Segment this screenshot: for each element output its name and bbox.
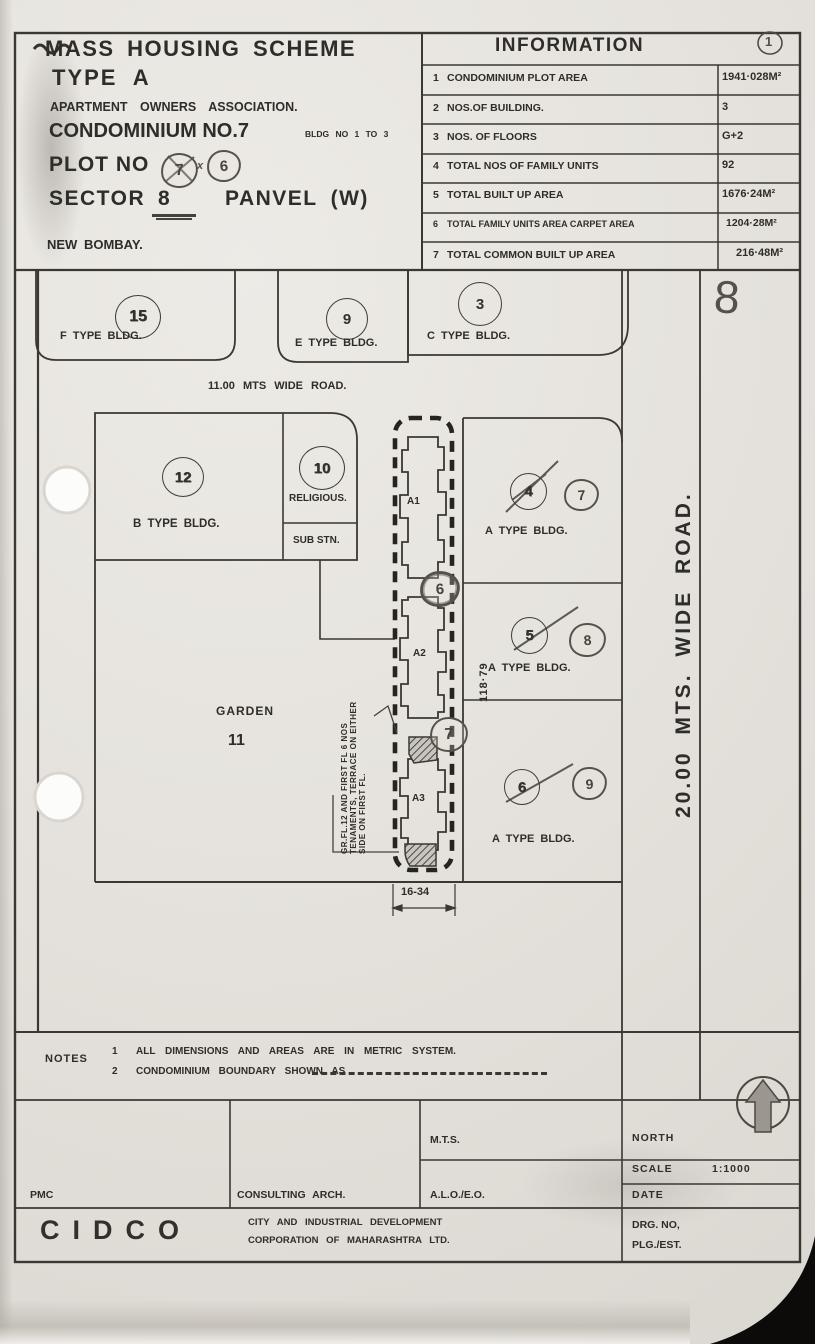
- paper-bottom-edge: [0, 1300, 690, 1344]
- sector-prefix: SECTOR: [49, 187, 145, 210]
- plot-no-cross-mark: x: [197, 160, 203, 172]
- note-text: ALL DIMENSIONS AND AREAS ARE IN METRIC S…: [136, 1046, 456, 1057]
- corporation-name-line1: CITY AND INDUSTRIAL DEVELOPMENT: [248, 1218, 442, 1228]
- consulting-arch-cell: CONSULTING ARCH.: [237, 1190, 345, 1202]
- drawing-sheet: MASS HOUSING SCHEME TYPE A APARTMENT OWN…: [0, 0, 815, 1344]
- sheet-number: 1: [765, 35, 772, 49]
- hand-sector-number: 8: [713, 271, 741, 323]
- plot-b-number-circled: 12: [162, 457, 204, 497]
- info-row-label: NOS.OF BUILDING.: [447, 103, 544, 115]
- garden-number: 11: [228, 732, 245, 750]
- sector-number: 8: [158, 187, 170, 210]
- corporation-name-line2: CORPORATION OF MAHARASHTRA LTD.: [248, 1236, 450, 1246]
- a-plot1-old-number: 4: [510, 473, 547, 510]
- plot-c-label: C TYPE BLDG.: [427, 330, 510, 342]
- note-number: 1: [112, 1046, 118, 1057]
- drg-no-line1: DRG. NO,: [632, 1220, 680, 1232]
- plot-e-label: E TYPE BLDG.: [295, 337, 377, 349]
- plot-no-prefix: PLOT NO: [49, 153, 149, 176]
- info-row-value: 216·48M²: [736, 247, 783, 259]
- info-row-label: NOS. OF FLOORS: [447, 132, 537, 144]
- boundary-dash-sample: [312, 1072, 547, 1075]
- drg-no-line2: PLG./EST.: [632, 1240, 682, 1252]
- info-row-label: TOTAL BUILT UP AREA: [447, 190, 563, 202]
- road-top-label: 11.00 MTS WIDE ROAD.: [208, 380, 346, 392]
- plot-c-outline: [408, 271, 628, 355]
- info-row-value: 92: [722, 159, 734, 171]
- plot-f-label: F TYPE BLDG.: [60, 330, 142, 342]
- info-row-no: 7: [433, 250, 439, 262]
- notes-label: NOTES: [45, 1053, 88, 1065]
- info-row-value: 1941·028M²: [722, 71, 781, 83]
- tower-a1-outline: [400, 437, 446, 578]
- amenity-number-circled: 10: [299, 446, 345, 490]
- annotation-line: SIDE ON FIRST FL.: [359, 659, 368, 854]
- condominium-line: CONDOMINIUM NO.7: [49, 120, 249, 142]
- hatched-patch-lower: [405, 844, 436, 866]
- info-title: INFORMATION: [495, 36, 644, 57]
- info-row-no: 5: [433, 190, 439, 202]
- sector-location: PANVEL (W): [225, 187, 369, 210]
- pmc-cell: PMC: [30, 1190, 53, 1202]
- a-plot1-label: A TYPE BLDG.: [485, 525, 568, 537]
- city-line: NEW BOMBAY.: [47, 238, 143, 252]
- scale-value: 1:1000: [712, 1164, 751, 1176]
- info-row-no: 1: [433, 73, 439, 85]
- a-plot2-label: A TYPE BLDG.: [488, 662, 571, 674]
- info-row-value: 1204·28M²: [726, 218, 777, 230]
- info-row-label: CONDOMINIUM PLOT AREA: [447, 73, 588, 85]
- note-number: 2: [112, 1066, 118, 1077]
- info-row-no: 4: [433, 161, 439, 173]
- scheme-type: TYPE A: [52, 66, 151, 90]
- sector-underline: [152, 214, 196, 217]
- a-plot3-old-number: 6: [504, 769, 540, 805]
- tower-a3-label: A3: [412, 793, 425, 804]
- road-right-label: 20.00 MTS. WIDE ROAD.: [672, 491, 695, 818]
- plot-e-number-circled: 9: [326, 298, 368, 340]
- a-plot3-label: A TYPE BLDG.: [492, 833, 575, 845]
- a-plot2-old-number: 5: [511, 617, 548, 654]
- bldg-no-note: BLDG NO 1 TO 3: [305, 130, 388, 139]
- date-label: DATE: [632, 1190, 664, 1202]
- info-row-label: TOTAL NOS OF FAMILY UNITS: [447, 161, 599, 173]
- hole-punches: [35, 467, 90, 821]
- north-label: NORTH: [632, 1133, 674, 1145]
- info-row-no: 6: [433, 220, 438, 230]
- tower-a1-label: A1: [407, 496, 420, 507]
- scale-label: SCALE: [632, 1164, 673, 1176]
- alo-eo-cell: A.L.O./E.O.: [430, 1190, 485, 1202]
- plot-b-label: B TYPE BLDG.: [133, 518, 220, 531]
- plot-c-number-circled: 3: [458, 282, 502, 326]
- info-row-value: 3: [722, 101, 728, 113]
- info-row-value: 1676·24M²: [722, 188, 775, 200]
- plan-boundaries: [38, 270, 700, 1100]
- info-row-label: TOTAL COMMON BUILT UP AREA: [447, 250, 615, 262]
- substation-label: SUB STN.: [293, 535, 340, 546]
- info-row-value: G+2: [722, 130, 743, 142]
- religious-label: RELIGIOUS.: [289, 493, 347, 504]
- mts-cell: M.T.S.: [430, 1135, 460, 1147]
- tenement-annotation: GR.FL.12 AND FIRST FL 6 NOS TENAMENTS, T…: [341, 659, 367, 854]
- info-row-no: 3: [433, 132, 439, 144]
- sector-underline-2: [156, 218, 192, 220]
- garden-label: GARDEN: [216, 705, 274, 718]
- cidco-logo-text: CIDCO: [40, 1216, 192, 1246]
- association-line: APARTMENT OWNERS ASSOCIATION.: [50, 101, 298, 115]
- tower-a3-outline: [400, 759, 446, 850]
- info-row-no: 2: [433, 103, 439, 115]
- north-arrow-icon: [737, 1077, 789, 1132]
- info-row-label: TOTAL FAMILY UNITS AREA CARPET AREA: [447, 220, 635, 230]
- tower-a2-label: A2: [413, 648, 426, 659]
- dimension-16-34: 16-34: [401, 886, 429, 898]
- scheme-title: MASS HOUSING SCHEME: [45, 37, 356, 61]
